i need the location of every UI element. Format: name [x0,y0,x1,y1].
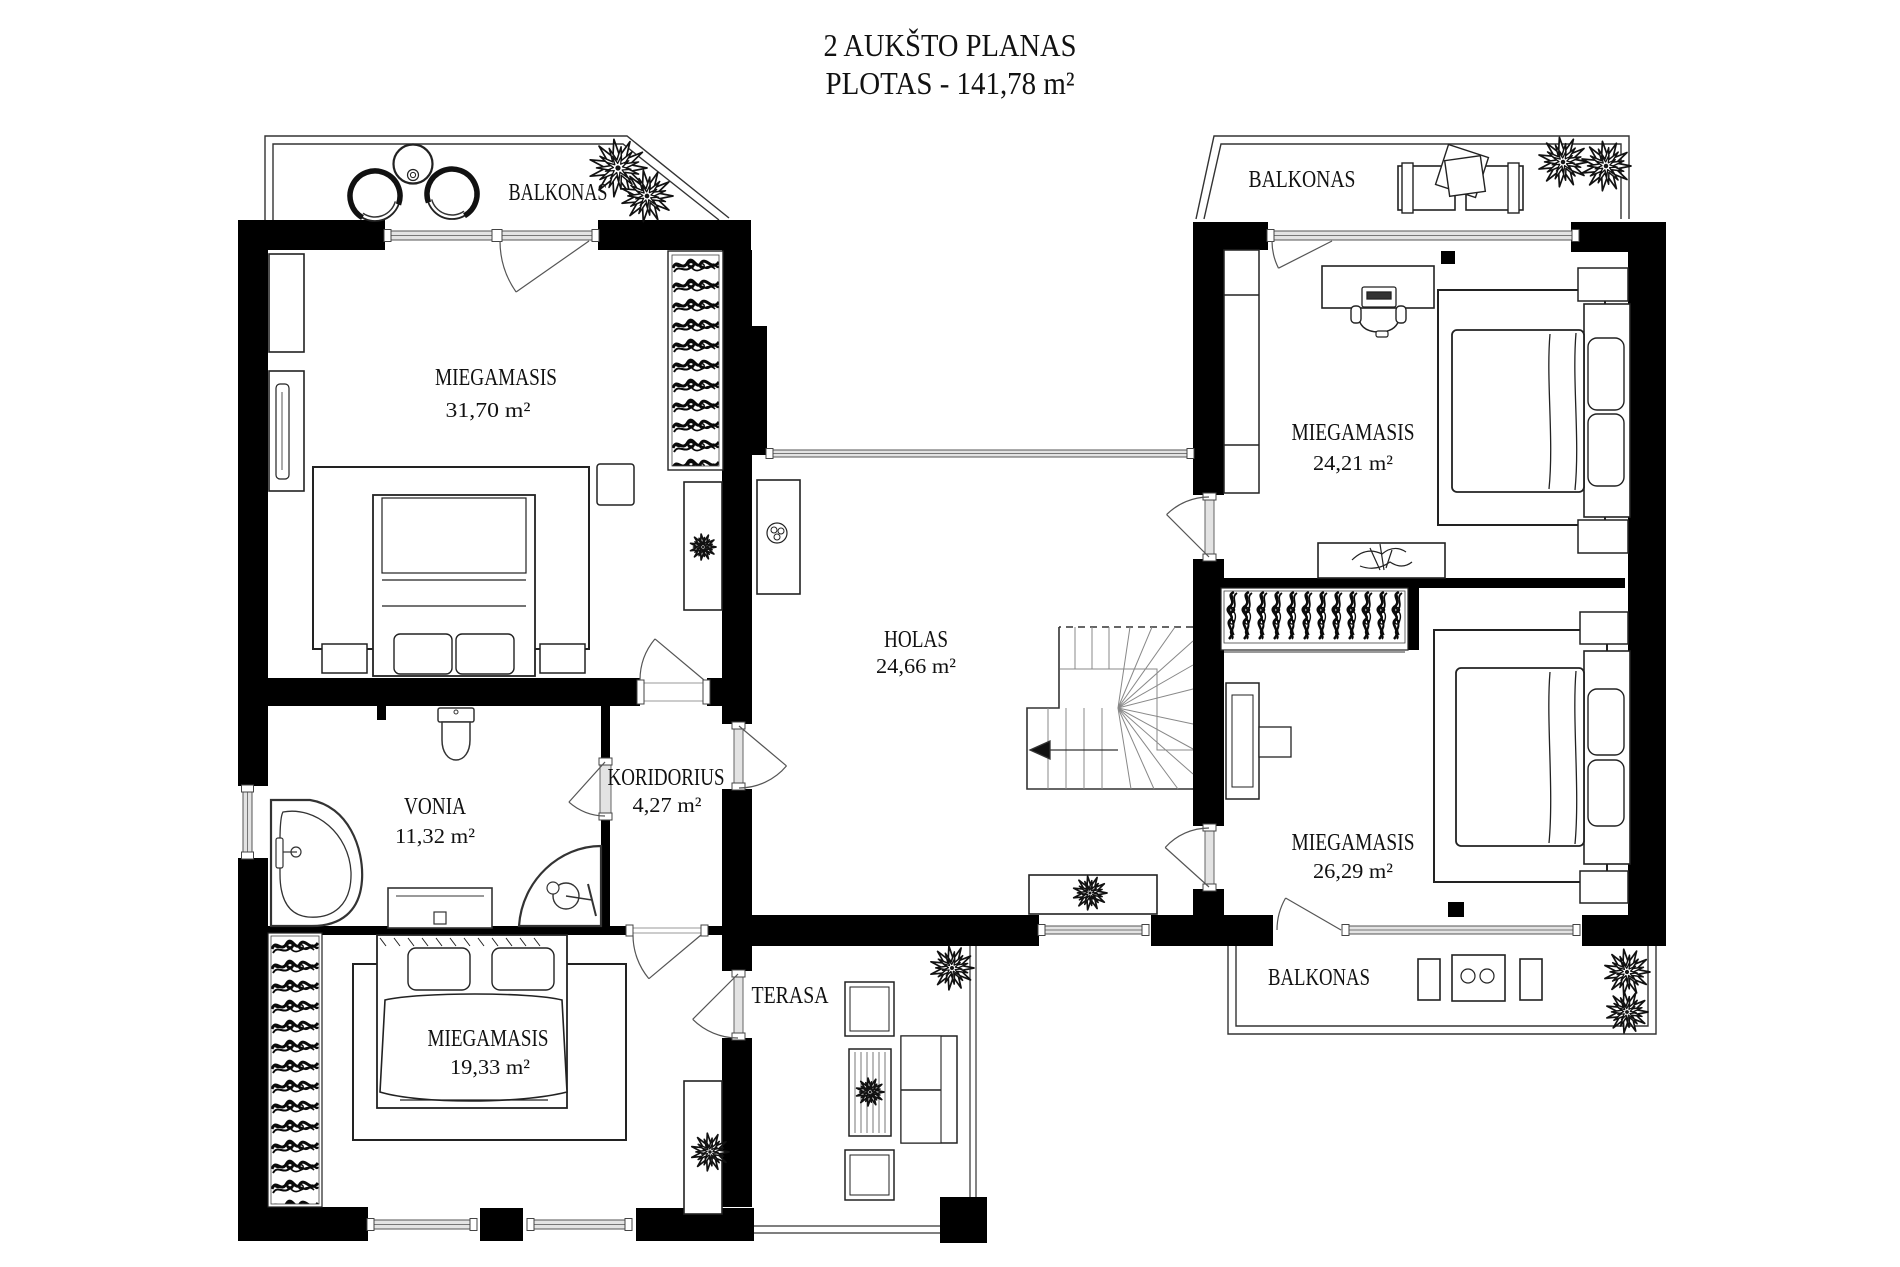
svg-text:KORIDORIUS: KORIDORIUS [608,765,725,791]
svg-text:MIEGAMASIS: MIEGAMASIS [1292,420,1415,446]
svg-text:19,33 m²: 19,33 m² [450,1055,530,1079]
svg-text:MIEGAMASIS: MIEGAMASIS [1292,830,1415,856]
svg-text:BALKONAS: BALKONAS [1268,965,1370,991]
svg-text:31,70 m²: 31,70 m² [446,398,531,422]
svg-text:BALKONAS: BALKONAS [1249,167,1356,193]
svg-text:2 AUKŠTO PLANAS: 2 AUKŠTO PLANAS [824,27,1077,63]
svg-text:26,29 m²: 26,29 m² [1313,859,1393,883]
svg-text:24,66 m²: 24,66 m² [876,654,956,678]
svg-text:4,27 m²: 4,27 m² [633,793,702,817]
svg-text:TERASA: TERASA [752,983,830,1009]
svg-text:24,21 m²: 24,21 m² [1313,451,1393,475]
svg-text:PLOTAS - 141,78 m²: PLOTAS - 141,78 m² [826,65,1075,101]
svg-text:11,32 m²: 11,32 m² [395,824,475,848]
svg-text:MIEGAMASIS: MIEGAMASIS [435,365,557,391]
svg-text:VONIA: VONIA [404,794,467,820]
svg-text:MIEGAMASIS: MIEGAMASIS [428,1026,549,1052]
svg-text:BALKONAS: BALKONAS [509,180,608,206]
svg-text:HOLAS: HOLAS [884,627,948,653]
